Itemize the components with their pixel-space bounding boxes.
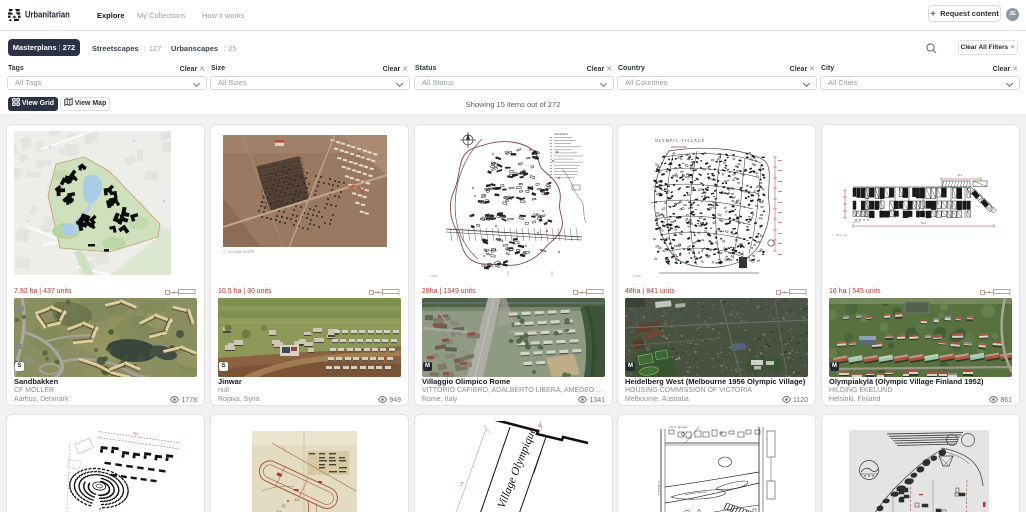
svg-text:731: 731: [957, 173, 962, 177]
svg-text:1 : 2000 plan: 1 : 2000 plan: [832, 233, 849, 237]
svg-text:LEGENDA: LEGENDA: [554, 132, 568, 136]
svg-text:742: 742: [133, 431, 139, 436]
svg-text:1:200: 1:200: [633, 274, 641, 278]
svg-text:544: 544: [921, 221, 926, 225]
svg-text:1:500: 1:500: [430, 274, 438, 278]
svg-text:OLYMPIC VILLAGE: OLYMPIC VILLAGE: [655, 139, 705, 143]
svg-text:V.le d. Tecnica: V.le d. Tecnica: [669, 425, 687, 429]
svg-text:d.34,0: d.34,0: [853, 221, 860, 224]
svg-text:HEIDELBERG: HEIDELBERG: [671, 146, 687, 149]
svg-text:V. Olimpica: V. Olimpica: [657, 481, 661, 495]
